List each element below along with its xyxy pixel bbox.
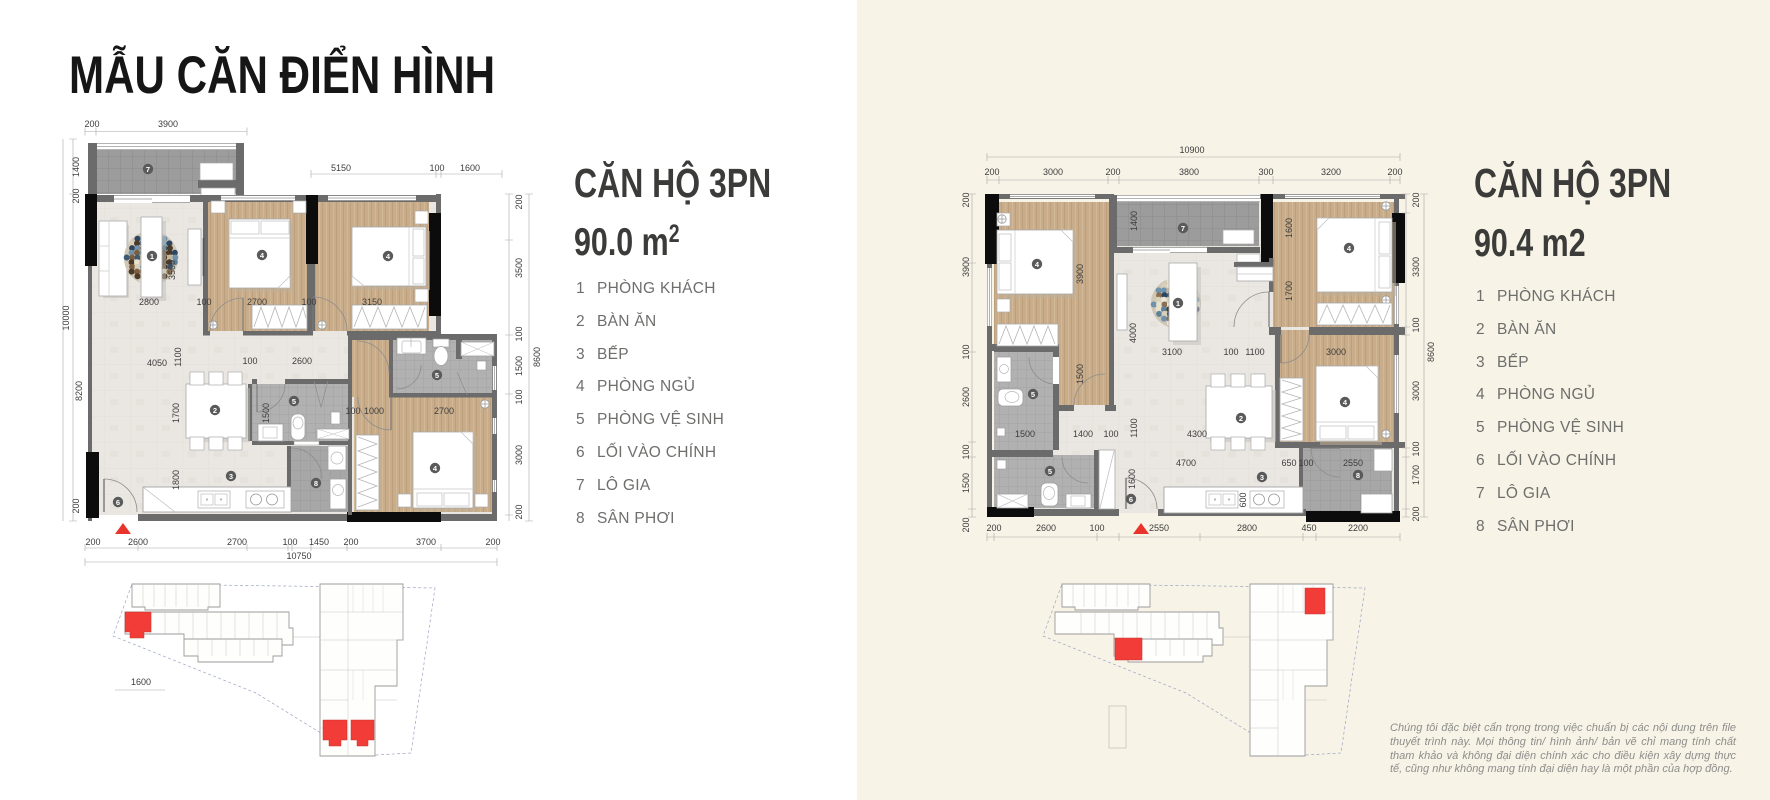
svg-text:3500: 3500 (167, 260, 177, 280)
svg-text:2600: 2600 (1036, 523, 1056, 533)
svg-text:4050: 4050 (147, 358, 167, 368)
svg-text:1700: 1700 (1284, 281, 1294, 301)
svg-text:100: 100 (1103, 429, 1118, 439)
svg-text:2600: 2600 (292, 356, 312, 366)
svg-text:7: 7 (1181, 224, 1185, 233)
svg-text:1600: 1600 (131, 677, 151, 687)
svg-text:2800: 2800 (139, 297, 159, 307)
svg-text:1400: 1400 (71, 157, 81, 177)
svg-text:5: 5 (1031, 390, 1035, 399)
svg-text:2550: 2550 (1343, 458, 1363, 468)
svg-text:3150: 3150 (362, 297, 382, 307)
svg-text:200: 200 (984, 167, 999, 177)
svg-text:10000: 10000 (61, 305, 71, 330)
svg-text:200: 200 (1387, 167, 1402, 177)
svg-text:100: 100 (345, 406, 360, 416)
svg-text:1000: 1000 (364, 406, 384, 416)
svg-text:3000: 3000 (1326, 347, 1346, 357)
svg-text:1600: 1600 (1284, 218, 1294, 238)
svg-text:1600: 1600 (1127, 469, 1137, 489)
svg-text:1100: 1100 (1129, 418, 1139, 437)
svg-text:1: 1 (1176, 299, 1180, 308)
svg-text:650: 650 (1281, 458, 1296, 468)
svg-text:200: 200 (1411, 506, 1421, 521)
svg-text:100: 100 (1223, 347, 1238, 357)
svg-text:1800: 1800 (171, 470, 181, 490)
svg-text:1600: 1600 (460, 163, 480, 173)
svg-text:3800: 3800 (1179, 167, 1199, 177)
svg-text:100: 100 (514, 389, 524, 404)
svg-text:600: 600 (1238, 492, 1248, 507)
svg-text:200: 200 (71, 188, 81, 203)
svg-text:2700: 2700 (247, 297, 267, 307)
svg-text:200: 200 (71, 498, 81, 513)
svg-text:100: 100 (961, 344, 971, 359)
svg-text:1100: 1100 (173, 347, 183, 366)
svg-text:2700: 2700 (227, 537, 247, 547)
svg-text:200: 200 (514, 504, 524, 519)
svg-text:2700: 2700 (434, 406, 454, 416)
svg-text:100: 100 (961, 444, 971, 459)
svg-text:1400: 1400 (1073, 429, 1093, 439)
svg-text:10900: 10900 (1179, 145, 1204, 155)
svg-text:100: 100 (429, 163, 444, 173)
svg-text:3700: 3700 (416, 537, 436, 547)
svg-text:3900: 3900 (158, 119, 178, 129)
svg-text:1100: 1100 (1245, 347, 1264, 357)
svg-text:3000: 3000 (1043, 167, 1063, 177)
svg-text:7: 7 (146, 165, 150, 174)
svg-text:2600: 2600 (961, 387, 971, 407)
svg-text:100: 100 (1411, 441, 1421, 456)
svg-text:200: 200 (961, 517, 971, 532)
svg-text:200: 200 (343, 537, 358, 547)
svg-text:1500: 1500 (1015, 429, 1035, 439)
svg-text:4300: 4300 (1187, 429, 1207, 439)
svg-text:3500: 3500 (514, 258, 524, 278)
svg-text:1700: 1700 (171, 403, 181, 423)
svg-text:8600: 8600 (1426, 342, 1436, 362)
svg-text:2550: 2550 (1149, 523, 1169, 533)
svg-text:8600: 8600 (532, 347, 542, 367)
svg-text:1500: 1500 (514, 356, 524, 376)
svg-text:1700: 1700 (1411, 465, 1421, 485)
svg-text:3000: 3000 (514, 445, 524, 465)
svg-text:8: 8 (1356, 471, 1360, 480)
svg-text:5150: 5150 (331, 163, 351, 173)
svg-text:3300: 3300 (1411, 257, 1421, 277)
svg-text:6: 6 (116, 498, 120, 507)
svg-text:3: 3 (1260, 473, 1264, 482)
svg-text:1400: 1400 (1129, 211, 1139, 231)
svg-text:200: 200 (85, 537, 100, 547)
svg-text:4000: 4000 (1128, 323, 1138, 343)
svg-text:100: 100 (1089, 523, 1104, 533)
svg-text:450: 450 (1301, 523, 1316, 533)
svg-text:100: 100 (1298, 458, 1313, 468)
svg-text:2200: 2200 (1348, 523, 1368, 533)
svg-text:1500: 1500 (261, 403, 271, 423)
svg-text:2800: 2800 (1237, 523, 1257, 533)
svg-text:300: 300 (1258, 167, 1273, 177)
svg-text:8: 8 (314, 479, 318, 488)
svg-text:200: 200 (1105, 167, 1120, 177)
svg-text:200: 200 (961, 192, 971, 207)
svg-text:200: 200 (485, 537, 500, 547)
svg-text:5: 5 (435, 371, 439, 380)
svg-text:3900: 3900 (961, 257, 971, 277)
svg-text:3100: 3100 (1162, 347, 1182, 357)
svg-text:3: 3 (229, 472, 233, 481)
svg-text:100: 100 (301, 297, 316, 307)
svg-text:2600: 2600 (128, 537, 148, 547)
svg-text:100: 100 (1411, 317, 1421, 332)
svg-text:1500: 1500 (961, 473, 971, 493)
svg-text:6: 6 (1129, 495, 1133, 504)
svg-text:1450: 1450 (309, 537, 329, 547)
svg-text:3200: 3200 (1321, 167, 1341, 177)
svg-text:200: 200 (84, 119, 99, 129)
svg-text:100: 100 (282, 537, 297, 547)
svg-text:100: 100 (242, 356, 257, 366)
svg-text:100: 100 (514, 326, 524, 341)
svg-text:200: 200 (986, 523, 1001, 533)
svg-text:5: 5 (1048, 467, 1052, 476)
svg-text:2: 2 (213, 406, 217, 415)
svg-text:100: 100 (196, 297, 211, 307)
svg-text:3000: 3000 (1411, 381, 1421, 401)
svg-text:200: 200 (514, 194, 524, 209)
svg-text:1500: 1500 (1075, 364, 1085, 384)
svg-text:3900: 3900 (1075, 264, 1085, 284)
svg-text:8200: 8200 (74, 381, 84, 401)
svg-text:1: 1 (150, 252, 154, 261)
svg-text:5: 5 (292, 397, 296, 406)
svg-text:4700: 4700 (1176, 458, 1196, 468)
svg-text:200: 200 (1411, 192, 1421, 207)
svg-text:2: 2 (1239, 414, 1243, 423)
